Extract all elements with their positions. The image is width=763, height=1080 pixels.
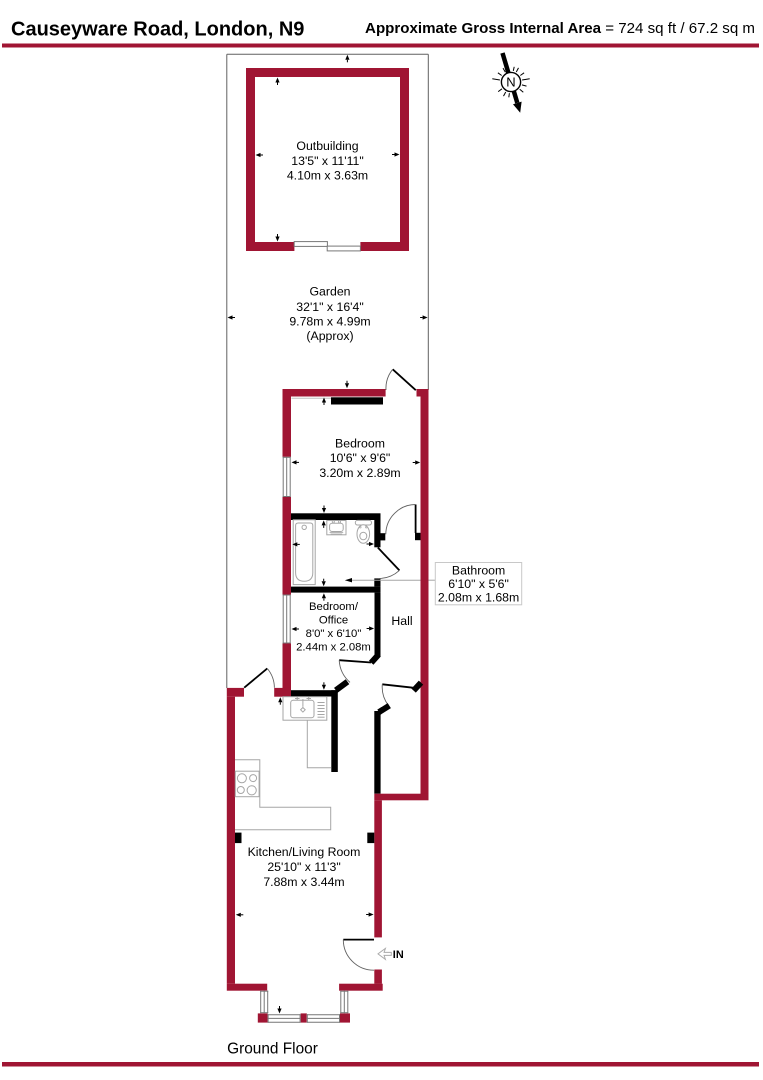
svg-text:Bedroom/: Bedroom/ (309, 601, 359, 613)
svg-text:2.44m x 2.08m: 2.44m x 2.08m (296, 641, 371, 653)
svg-text:4.10m x 3.63m: 4.10m x 3.63m (287, 169, 368, 183)
svg-text:Kitchen/Living Room: Kitchen/Living Room (248, 845, 361, 859)
svg-text:Causeyware Road, London, N9: Causeyware Road, London, N9 (11, 19, 304, 41)
svg-text:Approximate Gross Internal Are: Approximate Gross Internal Area = 724 sq… (365, 20, 755, 37)
svg-text:Hall: Hall (391, 614, 412, 628)
svg-text:N: N (506, 75, 515, 90)
svg-text:Bathroom: Bathroom (452, 564, 505, 578)
svg-text:10'6" x 9'6": 10'6" x 9'6" (330, 451, 391, 465)
svg-text:IN: IN (393, 949, 404, 961)
svg-text:Bedroom: Bedroom (335, 436, 385, 450)
svg-text:25'10" x 11'3": 25'10" x 11'3" (267, 860, 340, 874)
svg-text:(Approx): (Approx) (306, 329, 353, 343)
svg-text:8'0" x 6'10": 8'0" x 6'10" (306, 628, 362, 640)
svg-text:2.08m x 1.68m: 2.08m x 1.68m (438, 590, 519, 604)
svg-text:7.88m x 3.44m: 7.88m x 3.44m (263, 875, 344, 889)
svg-text:3.20m x 2.89m: 3.20m x 2.89m (319, 466, 400, 480)
svg-text:6'10" x 5'6": 6'10" x 5'6" (448, 577, 509, 591)
svg-text:13'5" x 11'11": 13'5" x 11'11" (291, 154, 363, 168)
svg-text:32'1" x 16'4": 32'1" x 16'4" (296, 300, 363, 314)
svg-text:Ground Floor: Ground Floor (227, 1041, 318, 1058)
svg-text:Garden: Garden (309, 284, 350, 298)
svg-text:Office: Office (319, 615, 348, 627)
svg-text:9.78m x 4.99m: 9.78m x 4.99m (289, 314, 370, 328)
svg-text:Outbuilding: Outbuilding (296, 139, 358, 153)
